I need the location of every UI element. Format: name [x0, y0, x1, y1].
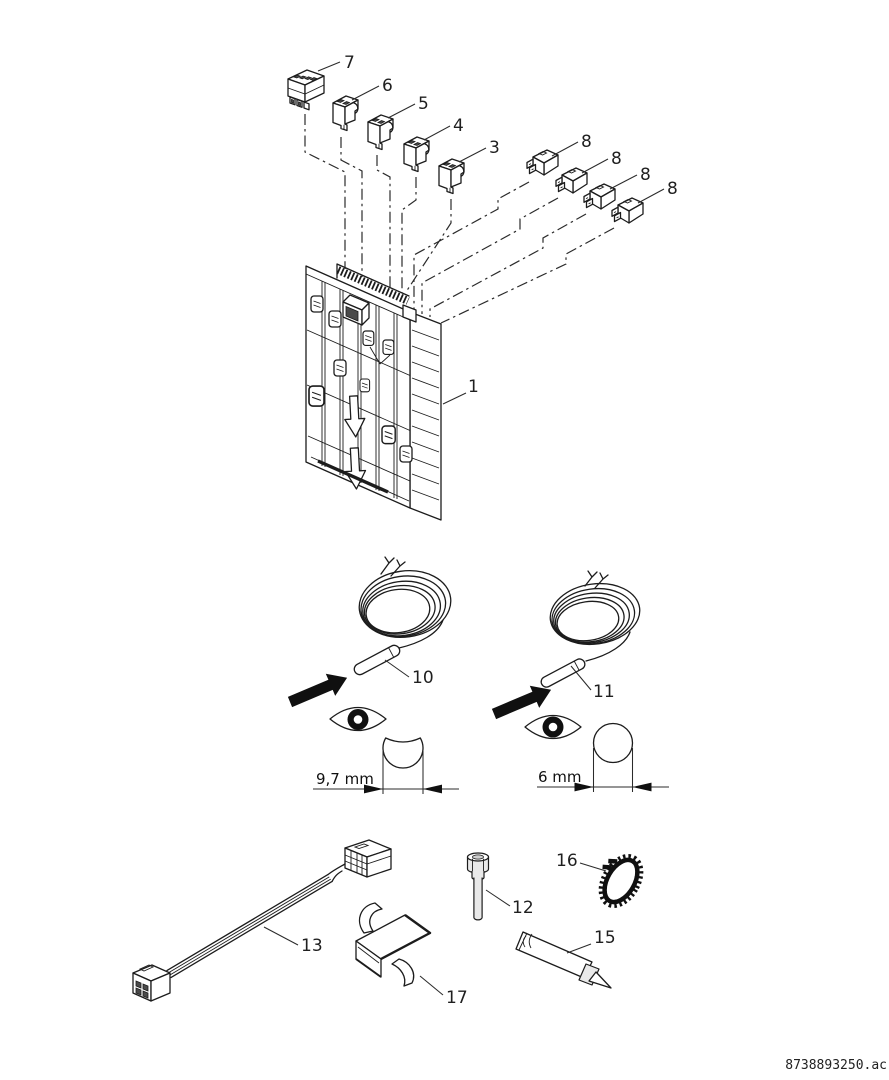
eye-icon-10: [330, 708, 386, 731]
leader-plate: [443, 393, 466, 404]
dimension-label-10: 9,7 mm: [316, 770, 374, 788]
callout-label-8-2: 8: [611, 149, 622, 169]
sensor-11-probe: [539, 657, 586, 689]
callout-label-8-4: 8: [667, 179, 678, 199]
callout-label-11: 11: [593, 682, 615, 702]
eye-icon-11: [525, 716, 581, 739]
cable-harness-13: [133, 840, 391, 1001]
plate-clip: [334, 360, 346, 376]
callout-label-5: 5: [418, 94, 429, 114]
sensor-10-coil: [355, 565, 455, 643]
connector-6: [333, 96, 358, 131]
plate-clip: [383, 340, 394, 354]
leader-sensor-10: [385, 660, 409, 677]
leader-paste-15: [567, 944, 591, 953]
probe-cross-section-11: [594, 724, 633, 763]
connector-7: [288, 70, 324, 110]
leader-bracket-17: [420, 976, 443, 995]
plate-clip: [360, 379, 370, 392]
callout-label-13: 13: [301, 936, 323, 956]
parts-diagram-page: 7 6 5 4 3 8 8 8 8: [0, 0, 889, 1080]
callout-label-4: 4: [453, 116, 464, 136]
mounting-plate: [306, 264, 441, 520]
insert-direction-arrow-11: [492, 686, 551, 719]
plate-clip: [311, 296, 323, 312]
connector-8-3: [584, 184, 615, 209]
connector-8-1: [527, 150, 558, 175]
plate-clip: [309, 386, 324, 406]
callout-label-15: 15: [594, 928, 616, 948]
plate-clip: [329, 311, 341, 327]
sensor-11-coil: [546, 578, 643, 650]
callout-label-7: 7: [344, 53, 355, 73]
cable-13-connector-top: [345, 840, 391, 877]
callout-label-16: 16: [556, 851, 578, 871]
sensor-11: [539, 571, 643, 689]
leader-cable-13: [264, 927, 298, 945]
insert-direction-arrow-10: [288, 674, 347, 707]
callout-label-8-3: 8: [640, 165, 651, 185]
callout-label-3: 3: [489, 138, 500, 158]
callout-label-1: 1: [468, 377, 479, 397]
connector-8-2: [556, 168, 587, 193]
sensor-10-probe: [352, 643, 401, 676]
connector-3: [439, 159, 464, 194]
exploded-parts-diagram: 7 6 5 4 3 8 8 8 8: [0, 0, 889, 1080]
callout-label-17: 17: [446, 988, 468, 1008]
leader-sleeve-12: [486, 890, 510, 906]
connector-5: [368, 115, 393, 150]
callout-label-10: 10: [412, 668, 434, 688]
sensor-10: [352, 557, 455, 677]
plate-clip: [382, 426, 395, 444]
callout-label-6: 6: [382, 76, 393, 96]
cable-13-connector-bottom: [133, 965, 170, 1001]
leader-clamp-16: [580, 863, 606, 871]
clamp-16: [588, 847, 647, 910]
bracket-17: [356, 903, 430, 986]
probe-cross-section-10: [383, 738, 423, 768]
immersion-sleeve-12: [468, 853, 489, 920]
callout-label-12: 12: [512, 898, 534, 918]
connector-4: [404, 137, 429, 172]
callout-label-8-1: 8: [581, 132, 592, 152]
dimension-label-11: 6 mm: [538, 768, 582, 786]
connector-8-4: [612, 198, 643, 223]
plate-clip: [363, 331, 374, 345]
document-code: 8738893250.ac: [785, 1058, 887, 1073]
plate-clip: [400, 446, 412, 462]
